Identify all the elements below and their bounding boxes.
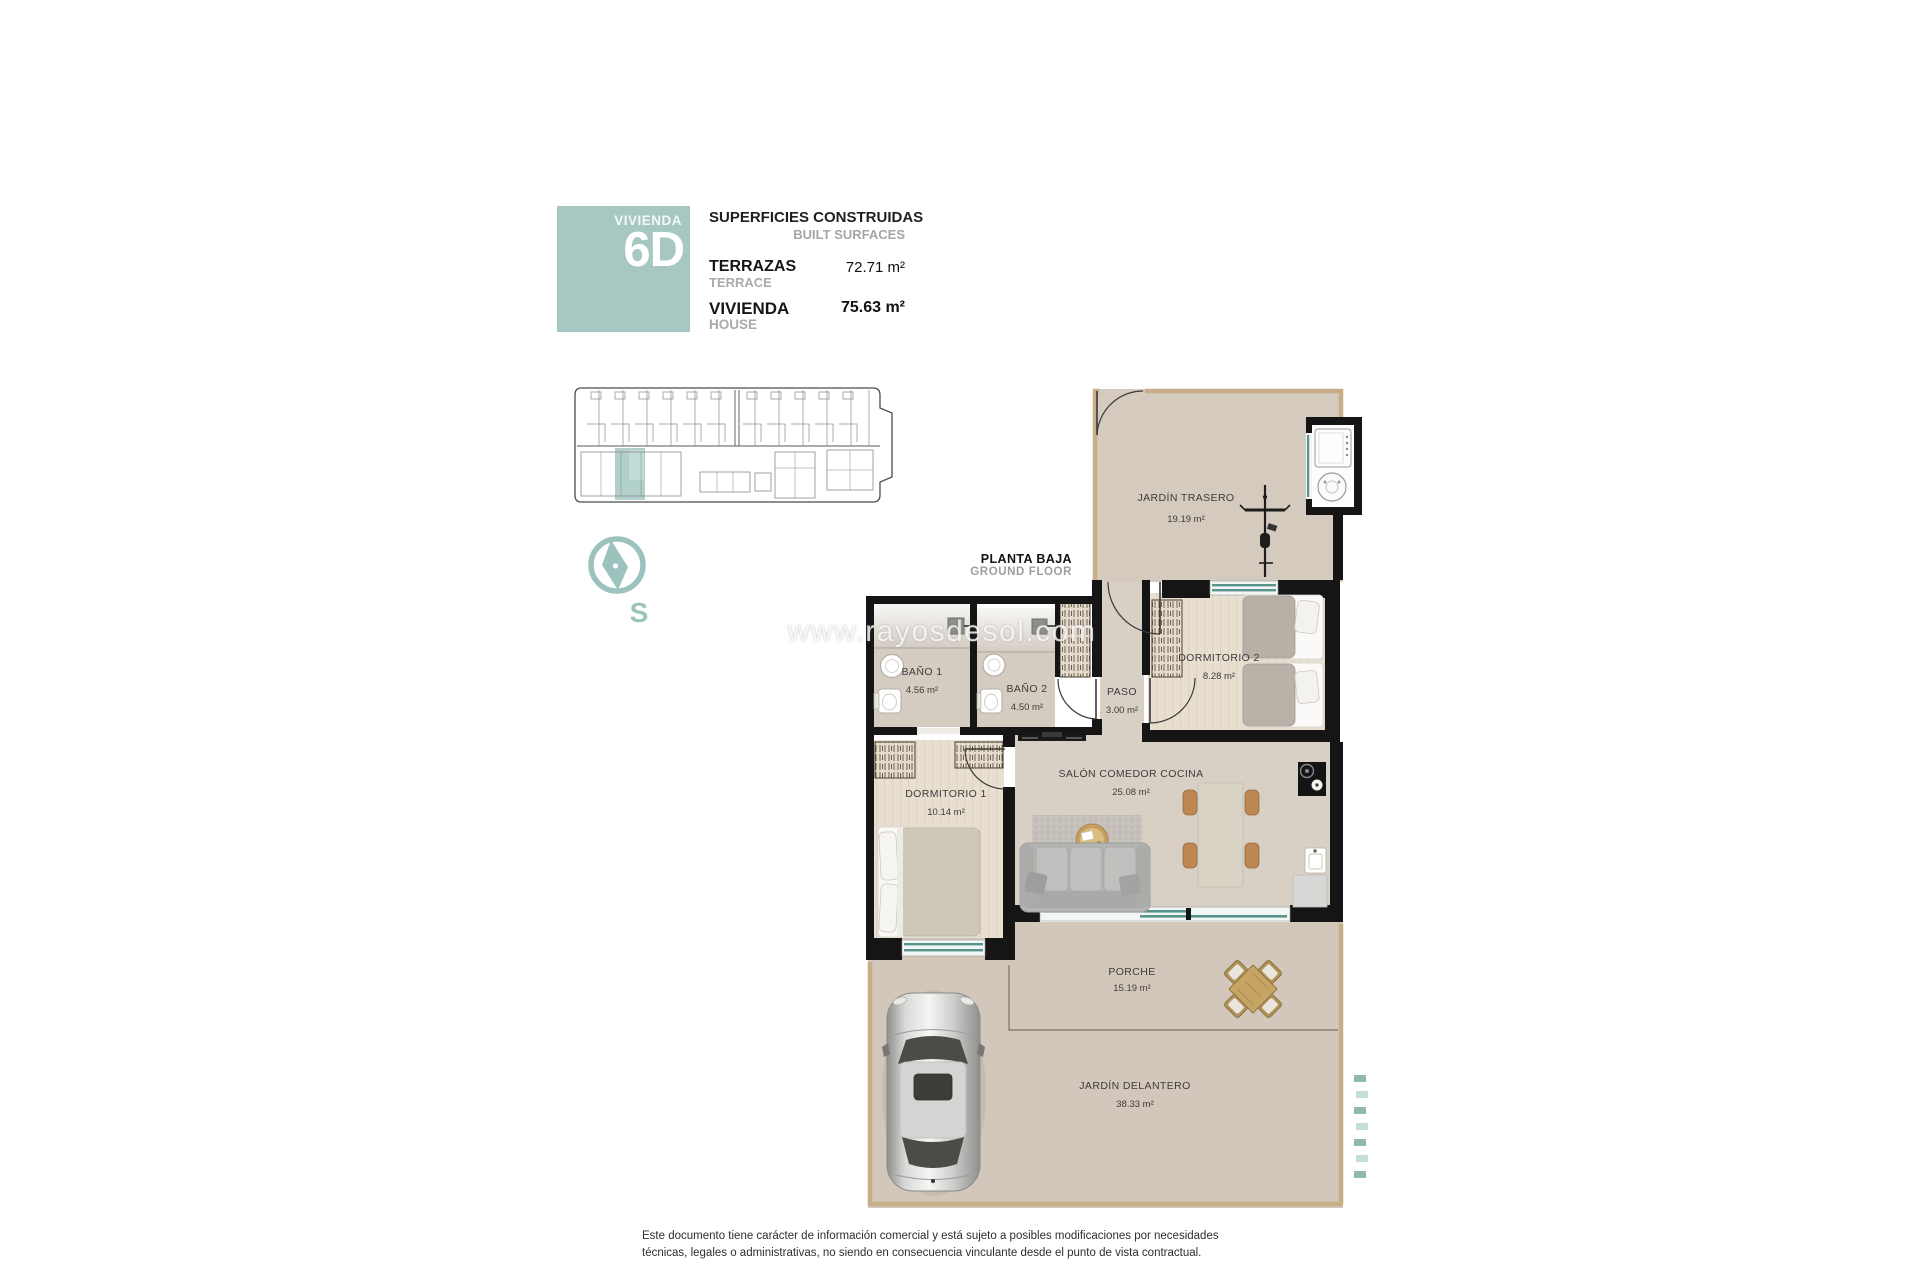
bed-icon [1243,595,1323,659]
floor-level-es: PLANTA BAJA [872,552,1072,566]
label-dormitorio2: DORMITORIO 2 [1178,652,1260,664]
area-bano2: 4.50 m² [1011,702,1043,713]
area-paso: 3.00 m² [1106,705,1138,716]
label-paso: PASO [1107,686,1137,698]
area-jardin-delantero: 38.33 m² [1116,1099,1154,1110]
floor-level-label: PLANTA BAJA GROUND FLOOR [872,552,1072,578]
compass-icon: S [583,530,663,630]
site-plan-highlight-light [629,450,644,480]
legend-terrace-value: 72.71 m² [709,259,905,276]
floor-plan-page: VIVIENDA 6D SUPERFICIES CONSTRUIDAS BUIL… [0,0,1920,1280]
disclaimer: Este documento tiene carácter de informa… [642,1228,1282,1262]
area-salon: 25.08 m² [1112,787,1150,798]
window [1306,433,1312,499]
floor-level-en: GROUND FLOOR [872,566,1072,578]
legend-subtitle: BUILT SURFACES [709,227,905,242]
wardrobe-icon [875,742,915,778]
label-dormitorio1: DORMITORIO 1 [905,788,987,800]
unit-badge: VIVIENDA 6D [557,206,690,332]
compass-south-label: S [630,597,649,628]
door-threshold [917,728,960,734]
legend: VIVIENDA 6D SUPERFICIES CONSTRUIDAS BUIL… [557,206,957,338]
disclaimer-line1: Este documento tiene carácter de informa… [642,1228,1282,1245]
kitchen-unit [1293,875,1327,907]
room-jardin-trasero [1093,389,1343,582]
washing-machine-icon [1315,429,1351,467]
bed-icon [1243,663,1323,727]
wardrobe-icon [955,742,1003,768]
toilet-icon [977,689,1002,713]
label-bano1: BAÑO 1 [902,665,943,678]
label-jardin-trasero: JARDÍN TRASERO [1137,491,1234,504]
legend-house-value: 75.63 m² [709,299,905,317]
label-bano2: BAÑO 2 [1007,682,1048,695]
floor-plan: JARDÍN TRASERO 19.19 m² BAÑO 1 4.56 m² B… [860,375,1375,1230]
area-porche: 15.19 m² [1113,983,1151,994]
area-dormitorio2: 8.28 m² [1203,671,1235,682]
label-porche: PORCHE [1108,966,1155,978]
sofa-icon [1020,843,1150,912]
area-bano1: 4.56 m² [906,685,938,696]
water-heater-icon [1318,473,1346,501]
disclaimer-line2: técnicas, legales o administrativas, no … [642,1245,1282,1262]
label-salon: SALÓN COMEDOR COCINA [1058,767,1203,780]
sink-icon [881,655,904,678]
area-jardin-trasero: 19.19 m² [1167,514,1205,525]
site-plan [565,378,910,513]
toilet-icon [874,689,901,713]
legend-house-label-en: HOUSE [709,317,757,332]
cooktop-icon [1298,762,1326,796]
label-jardin-delantero: JARDÍN DELANTERO [1079,1079,1190,1092]
legend-title: SUPERFICIES CONSTRUIDAS [709,209,905,226]
hedge-icon [1354,1075,1368,1178]
area-dormitorio1: 10.14 m² [927,807,965,818]
legend-terrace-label-en: TERRACE [709,275,772,290]
window [1210,581,1278,595]
unit-badge-number: 6D [623,226,684,275]
bed-icon [878,827,980,937]
car-icon [882,990,986,1196]
wardrobe-icon [1152,600,1182,677]
window [902,940,985,956]
sink-icon [983,654,1005,676]
kitchen-sink-icon [1305,848,1326,873]
watermark: www.rayosdesol.com [742,615,1142,649]
